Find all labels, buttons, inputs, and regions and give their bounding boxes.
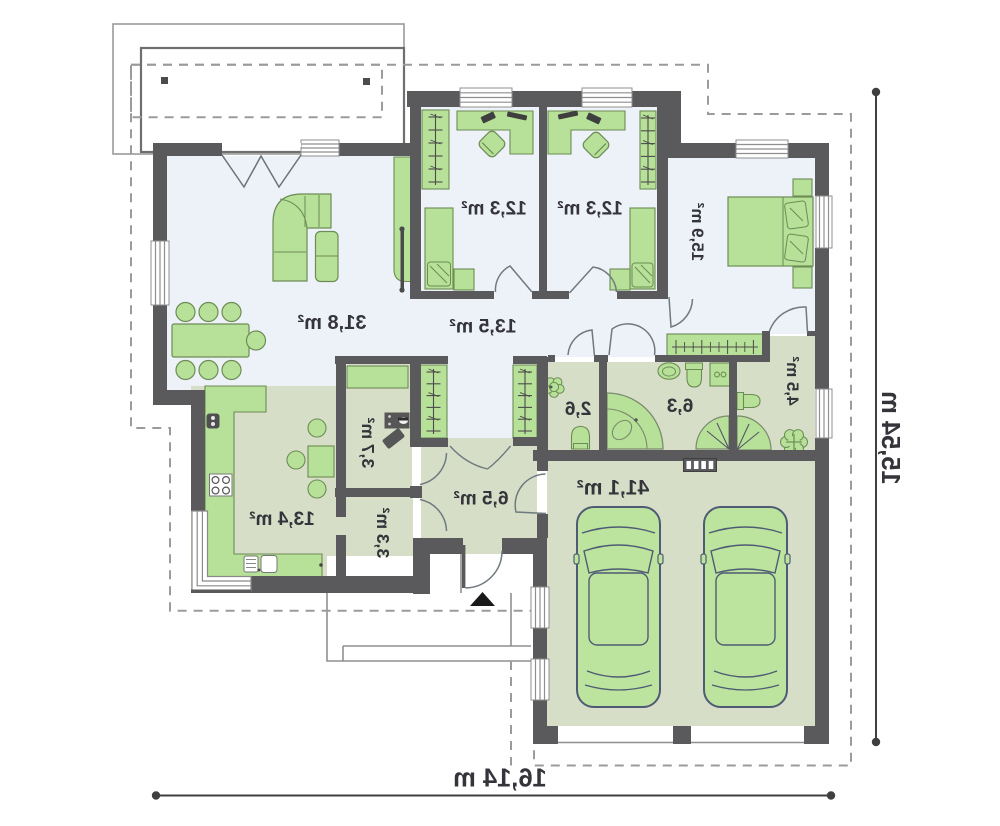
svg-text:41,1 m²: 41,1 m² [577,477,649,500]
svg-text:16,14 m: 16,14 m [453,765,547,793]
svg-text:12,3 m²: 12,3 m² [461,199,526,220]
svg-text:6,5 m²: 6,5 m² [454,489,509,510]
svg-text:13,5 m²: 13,5 m² [449,316,517,338]
svg-text:3,7 m²: 3,7 m² [358,418,378,469]
svg-text:15,9 m²: 15,9 m² [688,202,707,261]
svg-text:12,3 m²: 12,3 m² [557,199,622,220]
svg-text:13,4 m²: 13,4 m² [249,509,314,530]
svg-text:3,3 m²: 3,3 m² [373,508,393,559]
svg-text:2,6: 2,6 [565,399,591,420]
svg-text:15,54 m: 15,54 m [876,391,904,485]
svg-text:6,3: 6,3 [667,396,693,417]
svg-text:4,5 m²: 4,5 m² [783,356,802,405]
svg-text:31,8 m²: 31,8 m² [297,312,366,334]
